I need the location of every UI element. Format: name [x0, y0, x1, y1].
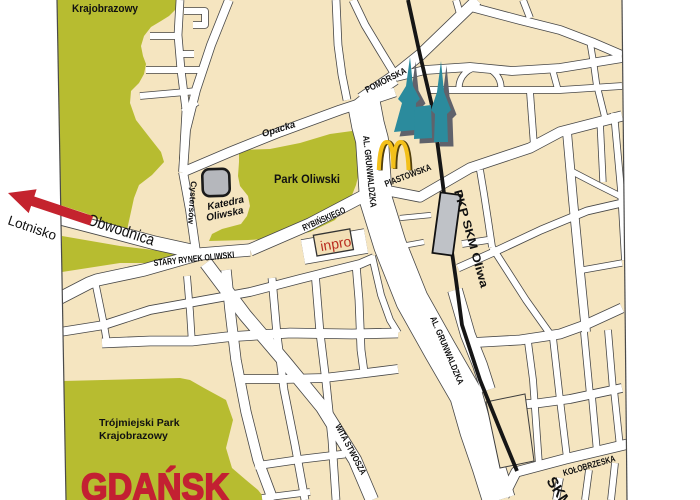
svg-text:Krajobrazowy: Krajobrazowy [72, 3, 139, 15]
svg-text:Krajobrazowy: Krajobrazowy [99, 430, 168, 442]
svg-text:GDAŃSK: GDAŃSK [81, 465, 229, 500]
svg-text:Park Oliwski: Park Oliwski [274, 172, 340, 186]
svg-text:Trójmiejski Park: Trójmiejski Park [99, 417, 180, 429]
